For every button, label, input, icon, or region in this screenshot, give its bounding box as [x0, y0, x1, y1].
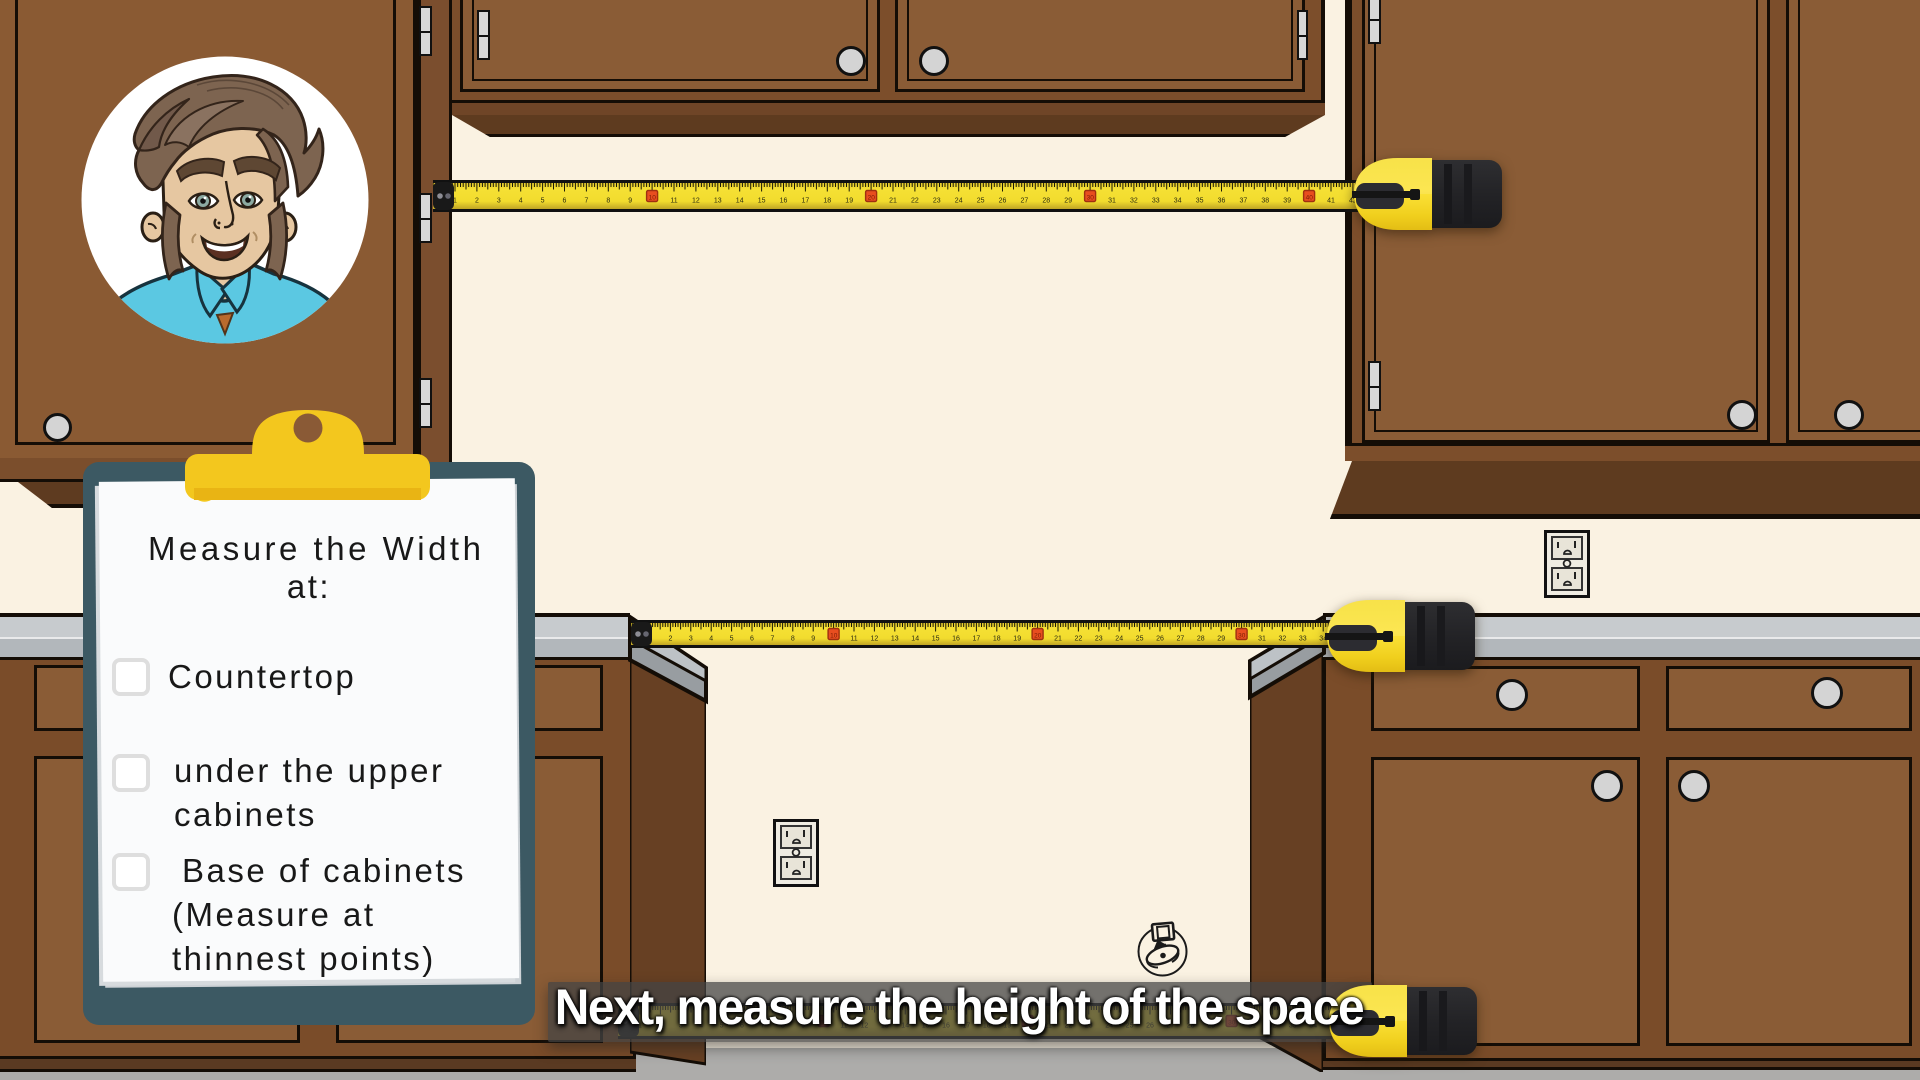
svg-text:14: 14: [736, 198, 744, 205]
svg-text:10: 10: [649, 195, 657, 202]
svg-text:26: 26: [1156, 636, 1164, 643]
svg-text:27: 27: [1177, 636, 1185, 643]
svg-text:5: 5: [541, 198, 545, 205]
svg-text:22: 22: [911, 198, 919, 205]
svg-text:12: 12: [692, 198, 700, 205]
svg-text:33: 33: [1152, 198, 1160, 205]
svg-text:29: 29: [1217, 636, 1225, 643]
svg-text:30: 30: [1238, 633, 1246, 640]
svg-text:13: 13: [714, 198, 722, 205]
svg-text:35: 35: [1196, 198, 1204, 205]
svg-text:19: 19: [845, 198, 853, 205]
svg-text:7: 7: [584, 198, 588, 205]
svg-text:23: 23: [933, 198, 941, 205]
svg-text:7: 7: [770, 636, 774, 643]
svg-text:4: 4: [519, 198, 523, 205]
svg-text:20: 20: [1034, 633, 1042, 640]
svg-text:26: 26: [999, 198, 1007, 205]
svg-text:37: 37: [1240, 198, 1248, 205]
svg-text:15: 15: [932, 636, 940, 643]
svg-text:23: 23: [1095, 636, 1103, 643]
svg-text:14: 14: [911, 636, 919, 643]
svg-text:28: 28: [1197, 636, 1205, 643]
svg-text:39: 39: [1283, 198, 1291, 205]
svg-text:10: 10: [830, 633, 838, 640]
svg-text:11: 11: [850, 636, 857, 643]
svg-text:12: 12: [871, 636, 879, 643]
svg-text:2: 2: [668, 636, 672, 643]
svg-text:5: 5: [730, 636, 734, 643]
svg-text:3: 3: [689, 636, 693, 643]
svg-text:4: 4: [709, 636, 713, 643]
svg-text:40: 40: [1306, 195, 1314, 202]
svg-text:16: 16: [952, 636, 960, 643]
svg-text:21: 21: [889, 198, 897, 205]
svg-text:38: 38: [1261, 198, 1269, 205]
svg-text:20: 20: [868, 195, 876, 202]
svg-text:16: 16: [780, 198, 788, 205]
svg-text:2: 2: [475, 198, 479, 205]
svg-text:36: 36: [1218, 198, 1226, 205]
svg-text:33: 33: [1299, 636, 1307, 643]
svg-text:31: 31: [1258, 636, 1266, 643]
svg-text:28: 28: [1042, 198, 1050, 205]
svg-text:31: 31: [1108, 198, 1116, 205]
svg-text:34: 34: [1174, 198, 1182, 205]
svg-text:32: 32: [1130, 198, 1138, 205]
svg-text:18: 18: [823, 198, 831, 205]
svg-text:8: 8: [791, 636, 795, 643]
svg-text:17: 17: [802, 198, 810, 205]
svg-text:41: 41: [1327, 198, 1335, 205]
svg-text:6: 6: [750, 636, 754, 643]
svg-text:24: 24: [1115, 636, 1123, 643]
svg-text:30: 30: [1087, 195, 1095, 202]
svg-text:11: 11: [670, 198, 677, 205]
svg-text:29: 29: [1064, 198, 1072, 205]
svg-text:21: 21: [1054, 636, 1062, 643]
svg-text:13: 13: [891, 636, 899, 643]
svg-text:9: 9: [811, 636, 815, 643]
svg-text:17: 17: [973, 636, 981, 643]
svg-text:8: 8: [606, 198, 610, 205]
svg-text:22: 22: [1075, 636, 1083, 643]
svg-text:25: 25: [977, 198, 985, 205]
svg-text:9: 9: [628, 198, 632, 205]
svg-text:15: 15: [758, 198, 766, 205]
svg-text:27: 27: [1021, 198, 1029, 205]
svg-text:3: 3: [497, 198, 501, 205]
svg-text:32: 32: [1279, 636, 1287, 643]
svg-text:18: 18: [993, 636, 1001, 643]
svg-text:6: 6: [563, 198, 567, 205]
svg-text:24: 24: [955, 198, 963, 205]
svg-text:25: 25: [1136, 636, 1144, 643]
svg-text:19: 19: [1013, 636, 1021, 643]
